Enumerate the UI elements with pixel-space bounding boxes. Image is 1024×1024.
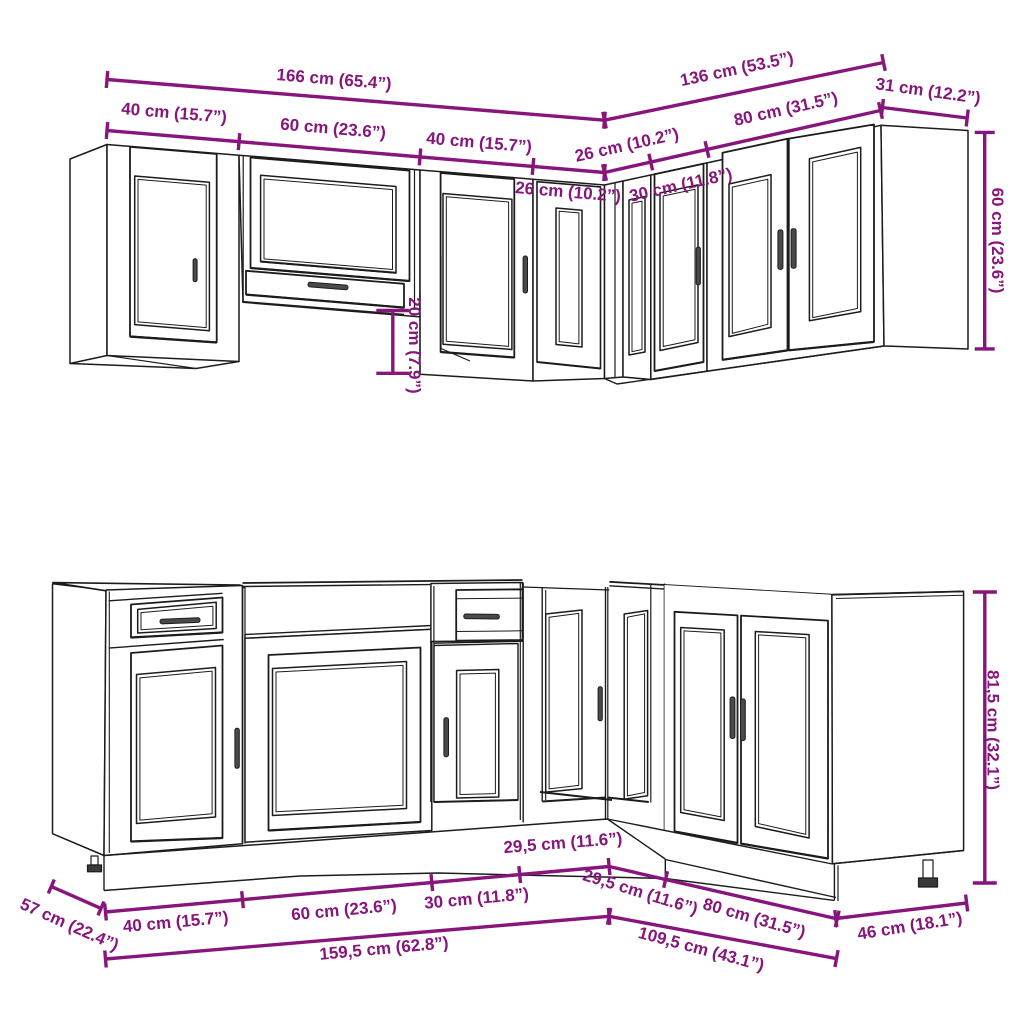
svg-text:20 cm (7.9”): 20 cm (7.9”) [405, 297, 424, 393]
svg-text:60 cm (23.6”): 60 cm (23.6”) [988, 188, 1007, 294]
svg-text:81,5 cm (32.1”): 81,5 cm (32.1”) [984, 670, 1003, 790]
